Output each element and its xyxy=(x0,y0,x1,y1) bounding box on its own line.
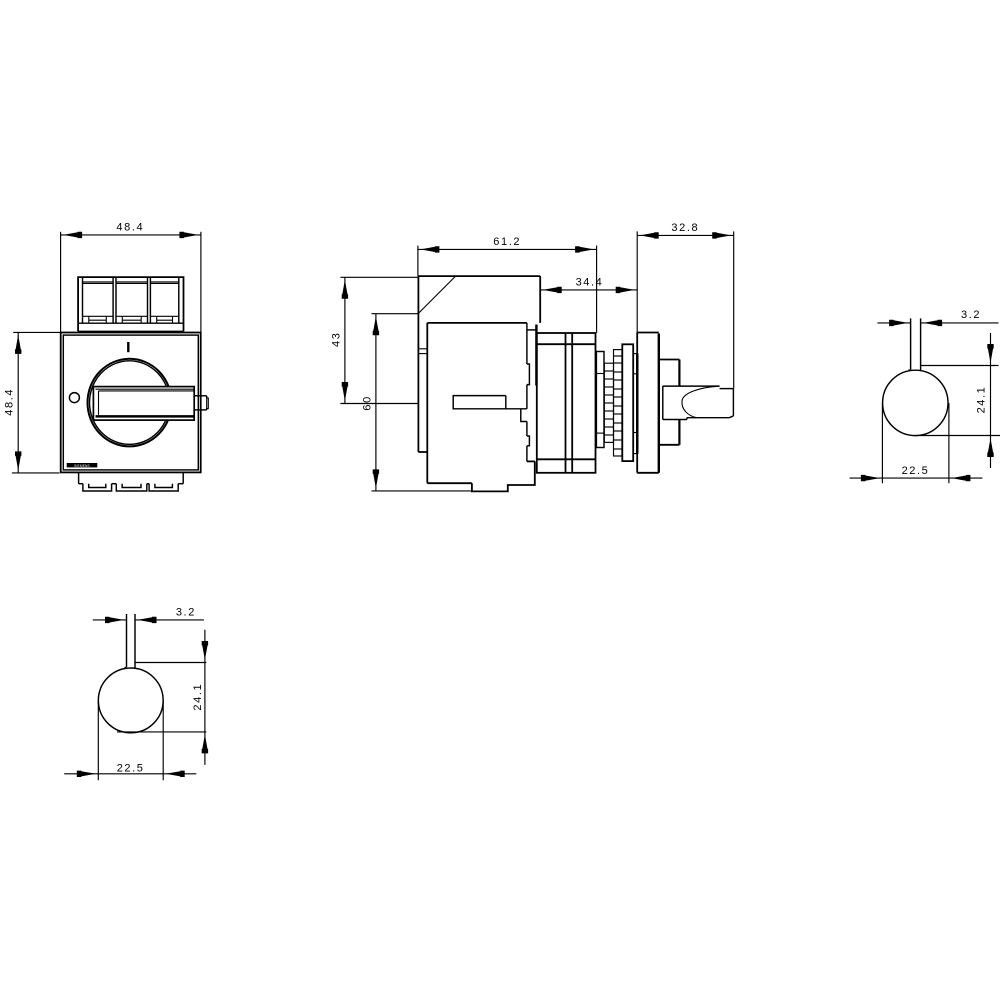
svg-text:48.4: 48.4 xyxy=(3,388,15,416)
svg-text:22.5: 22.5 xyxy=(117,762,145,774)
svg-text:34.4: 34.4 xyxy=(576,276,604,288)
svg-text:43: 43 xyxy=(330,332,342,347)
svg-text:48.4: 48.4 xyxy=(116,222,144,234)
svg-text:32.8: 32.8 xyxy=(671,222,699,234)
svg-text:24.1: 24.1 xyxy=(192,683,204,711)
svg-text:22.5: 22.5 xyxy=(902,465,930,477)
svg-text:3.2: 3.2 xyxy=(176,606,196,618)
svg-text:24.1: 24.1 xyxy=(976,386,988,414)
svg-text:61.2: 61.2 xyxy=(493,236,521,248)
svg-text:SIEMENS: SIEMENS xyxy=(74,464,90,468)
svg-text:3.2: 3.2 xyxy=(961,309,981,321)
svg-text:60: 60 xyxy=(362,395,374,410)
